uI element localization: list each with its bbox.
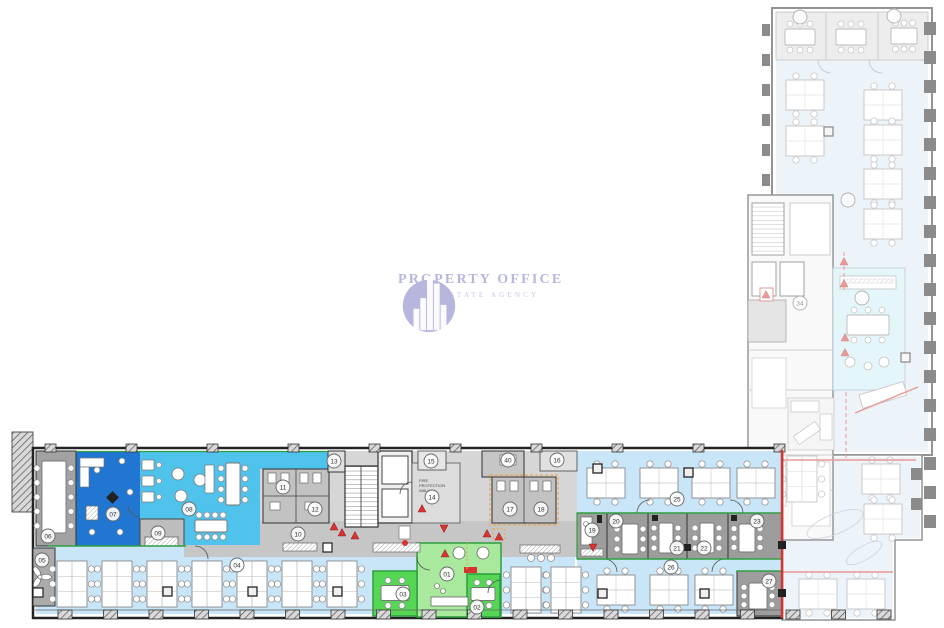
facade-column-tick [650,610,664,619]
chair [196,512,202,518]
room-label-14: 14 [425,490,439,504]
facade-column-tick [695,610,709,619]
facade-column-tick [924,370,936,383]
room-label-text: 01 [443,571,451,578]
lockers [520,545,560,553]
chair [757,544,763,550]
chair [806,572,812,578]
room-label [887,9,901,23]
chair [242,476,248,482]
chair [133,566,139,572]
chair [139,581,145,587]
chair [218,497,224,503]
chair [871,497,877,503]
chair [657,568,663,574]
chair [651,525,657,531]
chair [594,499,600,505]
chair [196,534,202,540]
chair [68,523,74,529]
lockers [373,543,420,552]
chair [889,156,895,162]
chair [614,536,620,542]
chair [838,21,844,27]
layer-bottom-wing: FIREPROTECTIONWALL0102030405060708091011… [12,432,891,619]
plan-rect [684,468,693,477]
chair [582,602,588,608]
plan-rect [911,468,922,480]
facade-column-tick [924,22,936,35]
property-office-logo: PROPERTY OFFICE REAL ESTATE AGENCY [398,270,548,299]
chair [871,240,877,246]
chair [242,465,248,471]
plan-rect [205,465,214,493]
chair [692,535,698,541]
table [739,524,755,552]
bench-01 [431,597,468,606]
table [226,463,240,505]
chair [139,566,145,572]
chair [838,47,844,53]
room-label-03: 03 [396,587,410,601]
facade-column-tick [762,24,770,36]
plan-rect [510,481,518,491]
room-label-text: 40 [504,457,512,464]
chair [49,566,55,572]
chair [824,610,830,616]
chair [889,162,895,168]
plan-rect [684,544,691,551]
facade-column-tick [924,109,936,122]
room-label-19: 19 [585,523,599,537]
facade-column-tick [207,444,218,452]
chair [720,606,726,612]
chair [865,337,871,343]
facade-column-tick [58,610,72,619]
chair [139,596,145,602]
plan-rect [270,502,280,510]
plan-rect [248,587,257,596]
plan-circle [441,589,446,594]
room-label-04: 04 [230,558,244,572]
plan-rect [313,473,321,483]
meeting-table [847,307,889,343]
chair [651,545,657,551]
chair [824,572,830,578]
chair [612,461,618,467]
facade-column-tick [369,444,380,452]
chair [675,525,681,531]
plan-circle [477,547,489,559]
facade-column-tick [924,428,936,441]
chair [218,465,224,471]
chair [717,461,723,467]
room-label-circle [793,10,807,24]
room-label-text: 17 [506,506,514,513]
plan-circle [157,463,162,468]
facade-column-tick [45,444,56,452]
chair [889,535,895,541]
room-label [793,10,807,24]
chair [503,587,509,593]
chair [741,584,747,590]
chair [797,47,803,53]
chair [889,240,895,246]
chair [229,596,235,602]
chair [242,497,248,503]
chair [274,581,280,587]
chair [622,568,628,574]
facade-column-tick [762,114,770,126]
room-label [855,291,869,305]
chair [319,566,325,572]
plan-circle [548,555,555,562]
plan-circle [538,555,545,562]
chair [220,534,226,540]
chair [204,534,210,540]
chair [34,465,40,471]
plan-rect [163,587,172,596]
lockers [283,543,317,551]
chair [889,118,895,124]
facade-column-tick [422,610,436,619]
room-label-text: 25 [673,496,681,503]
plan-rect [530,481,538,491]
room-label-text: 10 [294,531,302,538]
room-label-text: 34 [796,300,804,307]
room-label-text: 02 [473,604,481,611]
chair [879,337,885,343]
chair [133,596,139,602]
chair [901,46,907,52]
room-label-09: 09 [151,526,165,540]
chair [769,593,775,599]
facade-column-tick [924,254,936,267]
chair [807,21,813,27]
plan-rect [731,515,737,521]
table [42,461,66,533]
facade-column-tick [924,515,936,528]
meeting-table [785,21,815,53]
chair [675,535,681,541]
room-label-text: 14 [428,494,436,501]
chair [910,20,916,26]
facade-column-tick [741,610,755,619]
room-label-13: 13 [327,454,341,468]
chair [871,156,877,162]
room-label-27: 27 [762,574,776,588]
chair [503,572,509,578]
chair [692,525,698,531]
chair [731,526,737,532]
chair [218,476,224,482]
chair [892,46,898,52]
plan-rect [748,300,786,342]
facade-column-tick [924,312,936,325]
chair [622,606,628,612]
chair [647,461,653,467]
room-label-23: 23 [750,514,764,528]
chair [889,202,895,208]
chair [133,581,139,587]
chair [699,499,705,505]
chair [872,572,878,578]
chair [910,46,916,52]
room-label-18: 18 [534,502,548,516]
chair [543,587,549,593]
room-label-text: 09 [154,530,162,537]
plan-circle [119,458,125,464]
plan-circle [879,357,889,367]
rw-elevator [780,262,804,296]
chair [854,572,860,578]
chair [871,162,877,168]
table [891,28,917,44]
facade-column-tick [762,84,770,96]
chair [640,546,646,552]
chair [731,535,737,541]
chair [806,610,812,616]
chair [604,568,610,574]
room-label-15: 15 [424,454,438,468]
plan-circle [94,467,100,473]
plan-rect [33,588,43,597]
neighbor-wall-hatch [12,432,33,512]
facade-column-tick [786,610,800,619]
facade-column-tick [924,51,936,64]
room-label-text: 06 [44,533,52,540]
chair [184,566,190,572]
plan-rect [268,473,276,483]
facade-column-tick [240,610,254,619]
room-label-07: 07 [106,507,120,521]
chair [716,525,722,531]
facade-column-tick [149,610,163,619]
chair [865,307,871,313]
room-label-16: 16 [550,453,564,467]
room-label-text: 16 [553,457,561,464]
chair [769,602,775,608]
chair [49,596,55,602]
room-label-text: 07 [109,511,117,518]
plan-rect [652,515,658,521]
room-label-circle [887,9,901,23]
logo-building-icon [398,270,460,334]
table [622,524,638,554]
chair [818,461,824,467]
plan-rect [597,515,602,523]
chair [543,602,549,608]
chair [184,596,190,602]
plan-circle [402,540,408,546]
chair [640,536,646,542]
plan-rect [820,414,832,440]
chair [811,119,817,125]
facade-column-tick [924,457,936,470]
chair [543,572,549,578]
chair [223,596,229,602]
plan-rect [86,506,98,520]
room-label-text: 18 [537,506,545,513]
facade-column-tick [377,610,391,619]
floor-plan-drawing: 34FIREPROTECTIONWALL01020304050607080910… [0,0,944,628]
chair [385,578,391,584]
chair [94,581,100,587]
chair [223,581,229,587]
plan-rect [80,458,104,467]
chair [854,610,860,616]
plan-circle [435,584,440,589]
room-label-text: 08 [185,506,193,513]
plan-circle [172,468,184,480]
chair [793,111,799,117]
chair [717,499,723,505]
plan-rect [323,543,332,552]
room-label-17: 17 [503,502,517,516]
chair [319,596,325,602]
room-label-text: 21 [673,545,681,552]
chair [88,566,94,572]
chair [242,486,248,492]
chair [787,47,793,53]
room-label-text: 05 [38,557,46,564]
chair [94,596,100,602]
chair [34,508,40,514]
chair [871,83,877,89]
room-label-circle [841,193,855,207]
chair [793,157,799,163]
plan-rect [911,498,922,510]
elevator-car [382,489,408,517]
plan-circle [453,547,465,559]
chair [762,499,768,505]
chair [268,566,274,572]
facade-column-tick [924,341,936,354]
room-label-25: 25 [670,492,684,506]
chair [358,596,364,602]
room-label-05: 05 [35,553,49,567]
chair [68,494,74,500]
chair [793,73,799,79]
exit-sign [464,567,477,573]
facade-column-tick [195,610,209,619]
plan-circle [117,529,123,535]
chair [399,603,405,609]
chair [268,581,274,587]
plan-rect [901,353,910,362]
plan-rect [333,587,342,596]
chair [319,581,325,587]
plan-circle [528,555,535,562]
room-label-10: 10 [291,527,305,541]
chair [34,494,40,500]
chair [699,461,705,467]
facade-column-tick [762,54,770,66]
chair [614,546,620,552]
plan-rect [843,279,893,283]
facade-column-tick [513,610,527,619]
plan-rect [399,526,410,539]
floor-plan-page: 34FIREPROTECTIONWALL01020304050607080910… [0,0,944,628]
room-label-text: 11 [280,484,287,491]
chair [901,20,907,26]
chair [848,47,854,53]
chair [220,512,226,518]
facade-column-tick [924,399,936,412]
chair [88,581,94,587]
facade-column-tick [104,610,118,619]
chair [889,497,895,503]
chair [94,566,100,572]
chair [34,523,40,529]
facade-column-tick [924,486,936,499]
room-label-34: 34 [793,296,807,310]
room-label-text: 04 [233,562,241,569]
room-label-text: 15 [427,458,435,465]
chair [178,581,184,587]
plan-rect [80,467,89,487]
chair [582,587,588,593]
chair [879,307,885,313]
facade-column-tick [559,610,573,619]
chair [811,73,817,79]
table [836,29,866,45]
plan-rect [497,481,505,491]
plan-circle [157,479,162,484]
facade-column-tick [693,444,704,452]
chair [744,499,750,505]
plan-circle [89,529,95,535]
room-label-06: 06 [41,529,55,543]
facade-column-tick [531,444,542,452]
room-label-text: 19 [588,527,596,534]
facade-column-tick [450,444,461,452]
room-label-text: 27 [765,578,773,585]
chair [744,461,750,467]
facade-column-tick [126,444,137,452]
room-label-text: 23 [753,518,761,525]
chair [871,202,877,208]
table [847,315,889,335]
plan-circle [157,495,162,500]
facade-column-tick [832,610,846,619]
room-08-strip [260,451,328,469]
facade-column-tick [288,444,299,452]
plan-rect [142,492,154,502]
chair [274,566,280,572]
facade-column-tick [924,80,936,93]
chair [871,535,877,541]
chair [88,596,94,602]
facade-column-tick [924,138,936,151]
chair [720,568,726,574]
chair [741,593,747,599]
chair [229,581,235,587]
plan-rect [142,476,154,486]
table [195,520,227,532]
plan-circle [194,474,206,486]
plan-rect [791,401,819,412]
room-label-02: 02 [470,600,484,614]
room-label-text: 20 [612,518,620,525]
room-label-01: 01 [440,567,454,581]
chair [731,544,737,550]
chair [358,581,364,587]
chair [762,461,768,467]
facade-column-tick [774,444,785,452]
chair [68,508,74,514]
chair [178,566,184,572]
room-label-text: 26 [667,564,675,571]
